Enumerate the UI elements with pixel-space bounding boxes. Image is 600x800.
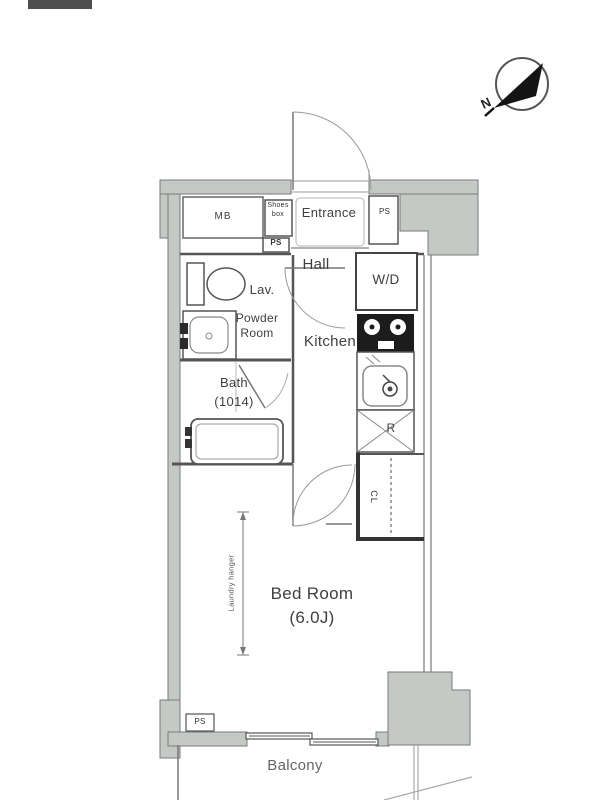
top-right-structural-column — [400, 194, 478, 255]
bedroom-door — [293, 464, 355, 526]
left-wall — [168, 194, 180, 745]
laundry-hanger-label: Laundry hanger — [227, 555, 236, 612]
vanity-sink — [180, 311, 236, 359]
balcony-lines — [178, 745, 472, 800]
refrigerator-label: R — [387, 421, 396, 435]
entrance-door — [291, 112, 371, 248]
balcony-label: Balcony — [267, 757, 322, 774]
shoes-box-label-line1: Shoes — [267, 202, 288, 209]
shoes-box-label-line2: box — [272, 211, 284, 218]
meter-box-label: MB — [215, 211, 232, 222]
kitchen-label: Kitchen — [304, 333, 356, 350]
hall-label: Hall — [302, 256, 329, 273]
pipe-space-shaft-label: PS — [379, 207, 388, 216]
pipe-space-entrance-label: PS — [270, 238, 281, 247]
bottom-wall-left — [168, 732, 247, 746]
floor-plan-page: MB Shoes box Entrance PS PS Hall W/D Lav… — [0, 0, 600, 800]
laundry-hanger-dimension — [237, 512, 249, 655]
bedroom-label-line2: (6.0J) — [289, 608, 334, 628]
kitchen-sink — [357, 352, 414, 410]
lav-label: Lav. — [250, 282, 275, 297]
floorplan-drawing — [0, 0, 600, 800]
sliding-window — [246, 733, 378, 745]
top-wall-right — [369, 180, 478, 194]
compass-icon — [485, 58, 548, 116]
bedroom-label-line1: Bed Room — [271, 584, 354, 604]
top-wall-left — [160, 180, 291, 194]
bath-label-line2: (1014) — [214, 394, 253, 409]
crop-artifact-bar — [28, 0, 92, 9]
left-flange-bottom — [160, 700, 180, 758]
entrance-opening — [291, 170, 369, 192]
toilet — [187, 263, 245, 305]
bath-label-line1: Bath — [220, 375, 248, 390]
pipe-space-bedroom-label-top: PS — [194, 717, 205, 726]
refrigerator-space — [357, 410, 414, 452]
bottom-right-structural-column — [388, 672, 470, 745]
powder-room-label-line2: Room — [240, 326, 273, 340]
closet — [356, 452, 424, 540]
powder-room-label-line1: Powder — [236, 311, 279, 325]
closet-label: CL — [369, 490, 379, 504]
stove — [357, 314, 414, 352]
washer-dryer-label: W/D — [372, 272, 399, 287]
entrance-label: Entrance — [302, 205, 356, 220]
